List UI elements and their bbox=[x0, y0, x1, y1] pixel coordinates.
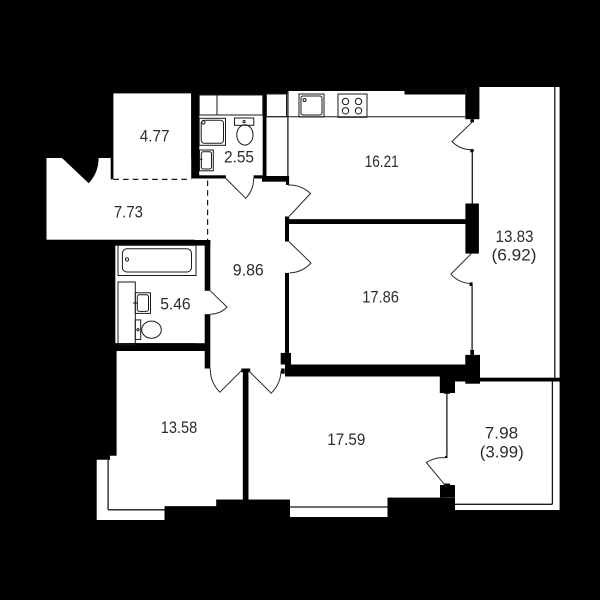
svg-text:(6.92): (6.92) bbox=[492, 245, 537, 264]
svg-text:4.77: 4.77 bbox=[140, 126, 170, 145]
svg-text:9.86: 9.86 bbox=[233, 260, 264, 279]
svg-text:7.98: 7.98 bbox=[485, 424, 518, 443]
svg-text:5.46: 5.46 bbox=[160, 294, 190, 313]
svg-text:17.86: 17.86 bbox=[362, 288, 399, 307]
svg-text:7.73: 7.73 bbox=[114, 202, 143, 221]
svg-text:13.83: 13.83 bbox=[496, 227, 534, 246]
svg-text:17.59: 17.59 bbox=[327, 430, 365, 449]
svg-text:16.21: 16.21 bbox=[365, 152, 399, 171]
svg-text:(3.99): (3.99) bbox=[480, 443, 524, 462]
svg-text:2.55: 2.55 bbox=[224, 148, 254, 167]
svg-text:13.58: 13.58 bbox=[161, 418, 197, 437]
